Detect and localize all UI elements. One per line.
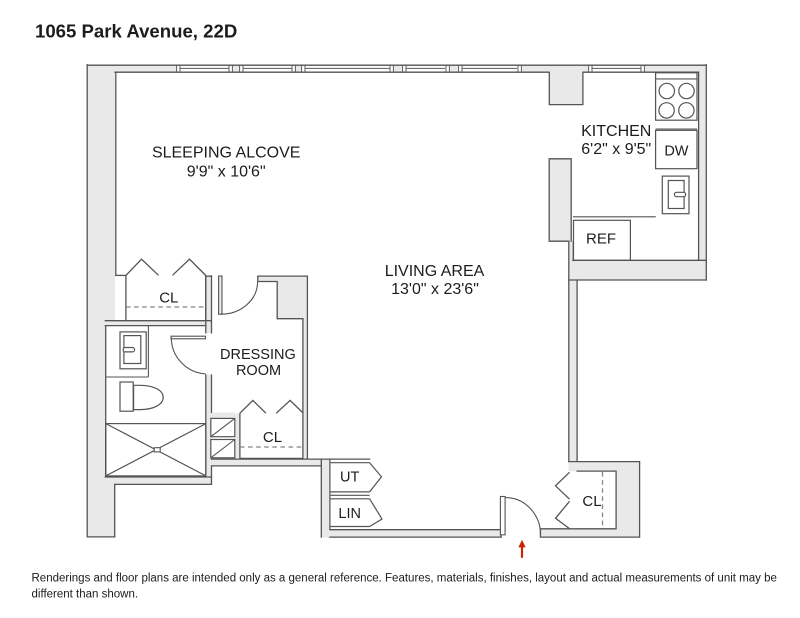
svg-text:Renderings and floor plans are: Renderings and floor plans are intended … [32, 573, 777, 585]
svg-text:UT: UT [340, 469, 359, 485]
svg-text:ROOM: ROOM [236, 363, 281, 379]
svg-text:different than shown.: different than shown. [32, 589, 139, 601]
svg-text:6'2" x 9'5": 6'2" x 9'5" [581, 141, 651, 158]
svg-text:LIN: LIN [338, 506, 361, 522]
svg-text:1065 Park Avenue, 22D: 1065 Park Avenue, 22D [35, 21, 237, 42]
svg-text:LIVING AREA: LIVING AREA [385, 263, 485, 280]
svg-text:CL: CL [582, 493, 601, 510]
svg-text:REF: REF [586, 230, 616, 247]
svg-text:DW: DW [664, 144, 688, 160]
svg-text:13'0" x 23'6": 13'0" x 23'6" [391, 281, 479, 298]
svg-text:CL: CL [263, 429, 282, 446]
svg-text:DRESSING: DRESSING [220, 347, 296, 363]
svg-text:9'9" x 10'6": 9'9" x 10'6" [187, 163, 266, 180]
svg-text:CL: CL [159, 289, 178, 306]
svg-text:SLEEPING ALCOVE: SLEEPING ALCOVE [152, 145, 301, 162]
svg-text:KITCHEN: KITCHEN [581, 123, 651, 140]
